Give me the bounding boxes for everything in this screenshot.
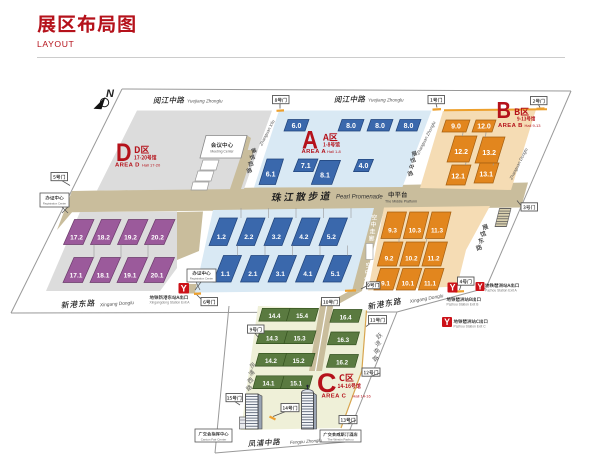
svg-text:Yuejiang Zhonglu: Yuejiang Zhonglu (368, 98, 404, 103)
svg-text:The Middle Platform: The Middle Platform (385, 200, 417, 204)
svg-text:8.1: 8.1 (320, 172, 330, 179)
svg-text:Pazhou Station Exit A: Pazhou Station Exit A (485, 289, 518, 293)
svg-text:AREA A: AREA A (302, 149, 327, 155)
svg-text:10.2: 10.2 (405, 256, 418, 263)
svg-text:Xingang Donglu: Xingang Donglu (99, 300, 135, 308)
svg-text:20.2: 20.2 (151, 234, 164, 241)
svg-text:15.2: 15.2 (293, 358, 306, 365)
svg-text:17.1: 17.1 (70, 272, 83, 279)
svg-text:14.1: 14.1 (262, 381, 275, 388)
svg-text:Y: Y (477, 282, 483, 291)
svg-text:12.0: 12.0 (477, 124, 491, 131)
svg-text:4.1: 4.1 (303, 271, 312, 278)
svg-text:4.2: 4.2 (299, 234, 308, 241)
svg-text:Registration Center: Registration Center (190, 277, 213, 281)
svg-text:3.1: 3.1 (276, 271, 285, 278)
svg-text:4.0: 4.0 (359, 163, 369, 170)
svg-text:LAYOUT: LAYOUT (37, 39, 74, 49)
svg-text:B: B (497, 97, 512, 123)
svg-text:Meeting Center: Meeting Center (210, 150, 234, 154)
svg-text:2.2: 2.2 (244, 234, 253, 241)
svg-text:19.1: 19.1 (124, 272, 137, 279)
svg-text:6.1: 6.1 (266, 171, 276, 178)
svg-text:15.4: 15.4 (296, 313, 309, 320)
svg-text:3.2: 3.2 (272, 234, 281, 241)
svg-text:Xingangdong Station Exit A: Xingangdong Station Exit A (150, 301, 191, 305)
svg-text:Hall 17-20: Hall 17-20 (142, 163, 161, 168)
svg-text:20.1: 20.1 (151, 272, 164, 279)
svg-text:Hall 14-16: Hall 14-16 (353, 394, 372, 399)
svg-text:Pazhou Station Exit C: Pazhou Station Exit C (454, 325, 487, 329)
svg-text:9.3: 9.3 (388, 227, 397, 234)
svg-text:8.0: 8.0 (346, 123, 356, 130)
svg-text:Y: Y (444, 317, 450, 327)
svg-text:9.1: 9.1 (381, 280, 390, 287)
svg-text:16.4: 16.4 (340, 314, 353, 321)
svg-text:Canton Fair Center: Canton Fair Center (201, 437, 227, 441)
svg-text:AREA C: AREA C (322, 394, 347, 400)
svg-text:Y: Y (181, 284, 188, 294)
svg-text:19.2: 19.2 (124, 234, 137, 241)
svg-text:8.0: 8.0 (404, 123, 414, 130)
svg-text:12.1: 12.1 (451, 174, 465, 181)
svg-text:9.2: 9.2 (385, 256, 394, 263)
svg-text:16.3: 16.3 (337, 337, 350, 344)
svg-text:15.3: 15.3 (294, 336, 307, 343)
svg-text:1.2: 1.2 (217, 234, 226, 241)
svg-text:5.1: 5.1 (331, 271, 340, 278)
svg-text:Hall 9-13: Hall 9-13 (525, 123, 542, 128)
svg-text:11.3: 11.3 (431, 227, 444, 234)
svg-text:15.1: 15.1 (290, 381, 303, 388)
svg-text:11.2: 11.2 (427, 256, 440, 263)
svg-text:16.2: 16.2 (336, 359, 349, 366)
svg-text:Pearl Promenade: Pearl Promenade (336, 195, 383, 201)
svg-text:The Westin Pazhou: The Westin Pazhou (327, 438, 353, 442)
svg-text:1.1: 1.1 (221, 271, 230, 278)
svg-text:5.2: 5.2 (327, 234, 336, 241)
svg-text:2.1: 2.1 (248, 271, 257, 278)
svg-text:14.4: 14.4 (268, 313, 281, 320)
svg-text:6.0: 6.0 (292, 123, 302, 130)
svg-text:12.2: 12.2 (454, 149, 468, 156)
svg-text:Y: Y (450, 283, 456, 293)
svg-text:Xingang Donglu: Xingang Donglu (408, 293, 444, 305)
svg-text:AREA D: AREA D (115, 163, 140, 169)
svg-text:9.0: 9.0 (451, 124, 461, 131)
svg-text:10.3: 10.3 (409, 227, 422, 234)
svg-text:8.0: 8.0 (375, 123, 385, 130)
svg-text:AREA B: AREA B (498, 123, 523, 129)
svg-text:7.1: 7.1 (301, 163, 311, 170)
svg-text:18.1: 18.1 (97, 272, 110, 279)
svg-text:13.1: 13.1 (479, 172, 493, 179)
svg-text:14.3: 14.3 (266, 336, 279, 343)
svg-text:N: N (106, 88, 115, 100)
svg-text:Pazhou Station Exit B: Pazhou Station Exit B (447, 303, 480, 307)
svg-text:10.1: 10.1 (402, 280, 415, 287)
svg-text:11.1: 11.1 (424, 280, 437, 287)
svg-text:17.2: 17.2 (70, 234, 83, 241)
svg-text:18.2: 18.2 (97, 234, 110, 241)
svg-text:Registration Center: Registration Center (43, 202, 66, 206)
svg-text:14.2: 14.2 (265, 358, 278, 365)
svg-text:Yuejiang Zhonglu: Yuejiang Zhonglu (187, 99, 223, 104)
svg-text:Hall 1-8: Hall 1-8 (327, 149, 342, 154)
svg-text:13.2: 13.2 (482, 150, 496, 157)
